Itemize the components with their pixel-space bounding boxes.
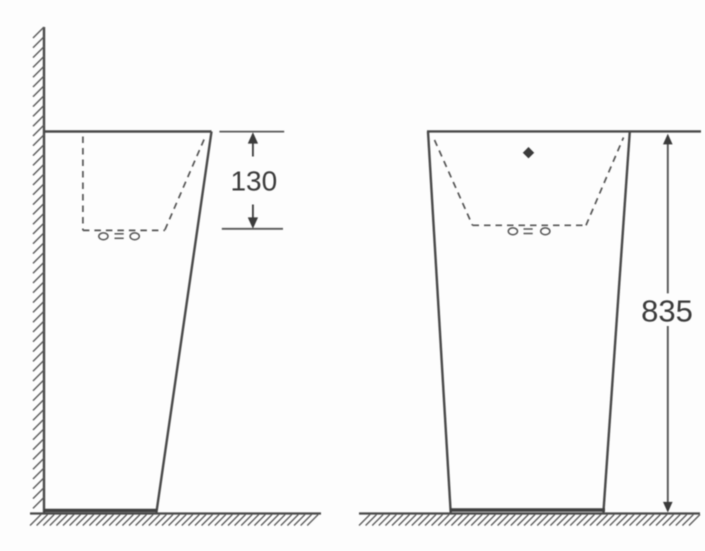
svg-text:835: 835 [641, 293, 693, 328]
svg-text:130: 130 [230, 166, 277, 197]
